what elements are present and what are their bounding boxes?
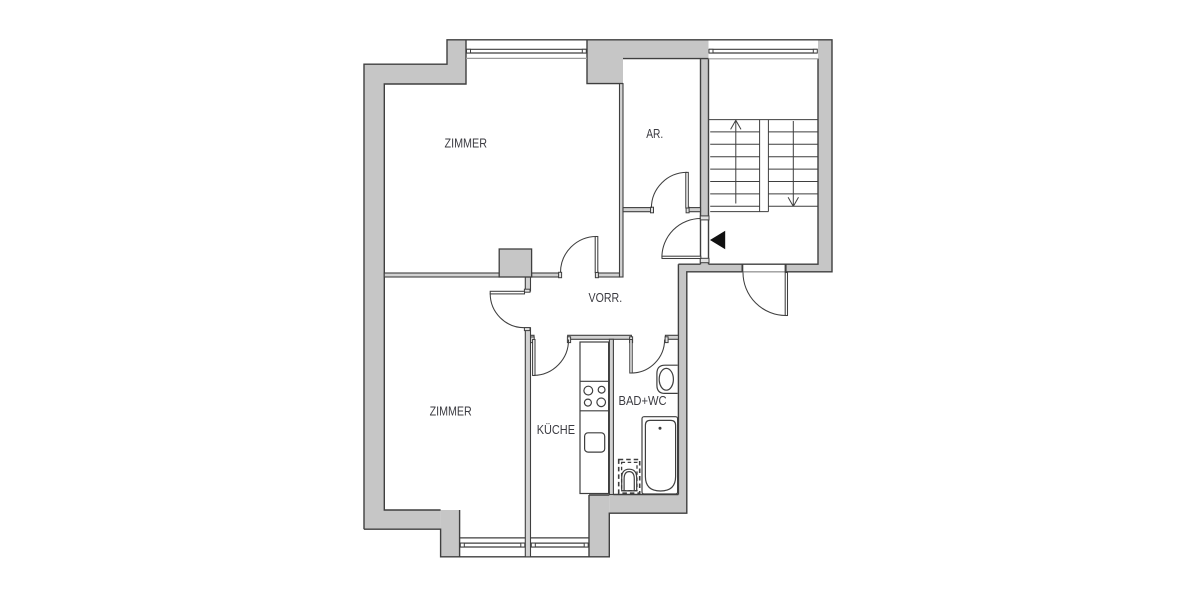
svg-text:AR.: AR. xyxy=(646,126,663,141)
svg-text:BAD+WC: BAD+WC xyxy=(619,393,667,408)
svg-text:ZIMMER: ZIMMER xyxy=(445,136,488,151)
svg-text:KÜCHE: KÜCHE xyxy=(537,422,575,437)
svg-text:VORR.: VORR. xyxy=(589,290,623,305)
svg-text:ZIMMER: ZIMMER xyxy=(430,403,472,418)
